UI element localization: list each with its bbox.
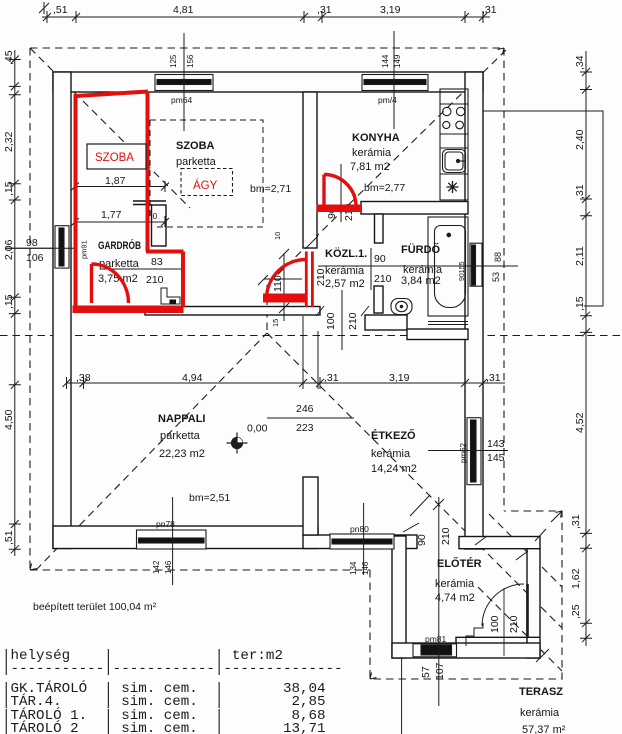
svg-text:4,50: 4,50 (3, 409, 15, 430)
svg-text:,31: ,31 (570, 514, 582, 529)
svg-text:22,23 m2: 22,23 m2 (159, 448, 205, 460)
svg-text:ELŐTÉR: ELŐTÉR (437, 557, 482, 570)
svg-text:ÁGY: ÁGY (193, 179, 218, 192)
svg-text:53: 53 (491, 272, 501, 282)
svg-text:210: 210 (508, 615, 520, 633)
svg-text:1,77: 1,77 (101, 209, 122, 221)
svg-text:3,19: 3,19 (380, 4, 401, 16)
svg-text:pm91: pm91 (80, 240, 89, 259)
svg-text:107: 107 (434, 662, 446, 680)
svg-text:0,00: 0,00 (247, 423, 268, 435)
svg-text:,15: ,15 (574, 296, 586, 311)
svg-text:145: 145 (487, 452, 505, 464)
svg-text:106: 106 (26, 252, 44, 264)
svg-text:149: 149 (393, 54, 402, 68)
svg-text:100: 100 (325, 312, 337, 330)
svg-text:pm81: pm81 (425, 634, 447, 644)
svg-text:bm=2,77: bm=2,77 (364, 182, 405, 194)
svg-text:,25: ,25 (570, 604, 582, 619)
svg-text:,31: ,31 (486, 372, 501, 384)
svg-text:57,37 m²: 57,37 m² (522, 724, 566, 734)
svg-text:144: 144 (381, 54, 390, 68)
svg-text:,15: ,15 (3, 181, 15, 196)
svg-text:,51: ,51 (53, 4, 68, 16)
svg-text:3,19: 3,19 (389, 372, 410, 384)
svg-text:pn80: pn80 (350, 524, 369, 534)
svg-text:GARDRÓB: GARDRÓB (98, 239, 141, 252)
svg-text:SZOBA: SZOBA (95, 152, 134, 164)
svg-text:90: 90 (374, 253, 386, 265)
svg-text:pm/4: pm/4 (378, 95, 397, 105)
svg-text:ÉTKEZŐ: ÉTKEZŐ (371, 429, 416, 442)
svg-text:14,24 m2: 14,24 m2 (371, 463, 417, 475)
svg-text:3,84 m2: 3,84 m2 (401, 275, 441, 287)
svg-text:90: 90 (416, 534, 428, 546)
svg-text:134: 134 (349, 561, 358, 575)
svg-text:pn78: pn78 (156, 519, 175, 529)
svg-text:bm=2,51: bm=2,51 (189, 492, 230, 504)
svg-text:57: 57 (420, 666, 432, 678)
svg-text:0: 0 (153, 211, 158, 221)
svg-text:2,57 m2: 2,57 m2 (325, 278, 365, 290)
svg-text:TERASZ: TERASZ (519, 686, 563, 698)
svg-text:FÜRDŐ: FÜRDŐ (401, 243, 441, 256)
svg-text:143: 143 (487, 438, 505, 450)
svg-text:90155: 90155 (459, 261, 466, 281)
svg-text:210: 210 (440, 527, 452, 545)
svg-text:210: 210 (146, 274, 164, 286)
svg-text:2,32: 2,32 (3, 131, 15, 152)
svg-text:15: 15 (271, 319, 280, 327)
svg-text:4,81: 4,81 (173, 4, 194, 16)
svg-text:88: 88 (493, 252, 503, 262)
svg-text:210: 210 (347, 312, 359, 330)
svg-text:10: 10 (273, 232, 282, 240)
svg-text:4,94: 4,94 (182, 372, 203, 384)
svg-text:1,87: 1,87 (105, 175, 126, 187)
svg-text:223: 223 (296, 422, 314, 434)
svg-text:SZOBA: SZOBA (176, 140, 215, 152)
svg-text:,31: ,31 (482, 4, 497, 16)
svg-text:2,11: 2,11 (574, 246, 586, 266)
svg-text:bm=2,71: bm=2,71 (250, 183, 291, 195)
svg-text:beépített terület 100,04 m²: beépített terület 100,04 m² (33, 601, 157, 613)
svg-text:KÖZL.1.: KÖZL.1. (325, 247, 367, 260)
svg-text:kerámia: kerámia (352, 147, 392, 159)
svg-text:156: 156 (186, 54, 195, 68)
svg-text:4,74 m2: 4,74 m2 (435, 592, 475, 604)
svg-text:kerámia: kerámia (325, 265, 365, 277)
svg-text:2,40: 2,40 (574, 129, 586, 150)
svg-text:parketta: parketta (160, 430, 201, 442)
svg-text:,34: ,34 (574, 55, 586, 70)
svg-text:kerámia: kerámia (371, 448, 411, 460)
svg-text:pm62: pm62 (459, 442, 468, 463)
svg-text:210: 210 (374, 273, 392, 285)
svg-text:142: 142 (152, 560, 161, 574)
svg-text:kerámia: kerámia (435, 578, 475, 590)
svg-text:100: 100 (489, 615, 501, 633)
svg-text:,51: ,51 (3, 530, 15, 545)
svg-text:146: 146 (361, 561, 370, 575)
svg-text:98: 98 (26, 237, 38, 249)
svg-text:4,52: 4,52 (574, 412, 586, 433)
svg-text:,15: ,15 (3, 294, 15, 309)
svg-text:125: 125 (169, 54, 178, 68)
svg-text:parketta: parketta (176, 156, 217, 168)
svg-text:KONYHA: KONYHA (352, 132, 400, 144)
svg-text:NAPPALI: NAPPALI (158, 413, 205, 425)
svg-text:83: 83 (151, 256, 163, 268)
svg-text:pm64: pm64 (171, 95, 193, 105)
svg-text:146: 146 (164, 560, 173, 574)
svg-text:1,62: 1,62 (570, 568, 582, 589)
svg-text:,38: ,38 (76, 372, 91, 384)
svg-text:,31: ,31 (324, 372, 339, 384)
svg-text:,31: ,31 (574, 184, 586, 199)
svg-text:246: 246 (296, 403, 314, 415)
svg-text:,45: ,45 (3, 50, 15, 65)
svg-text:2,06: 2,06 (3, 239, 15, 260)
svg-text:,31: ,31 (317, 4, 332, 16)
svg-text:7,81 m2: 7,81 m2 (350, 161, 390, 173)
svg-text:kerámia: kerámia (520, 707, 560, 719)
